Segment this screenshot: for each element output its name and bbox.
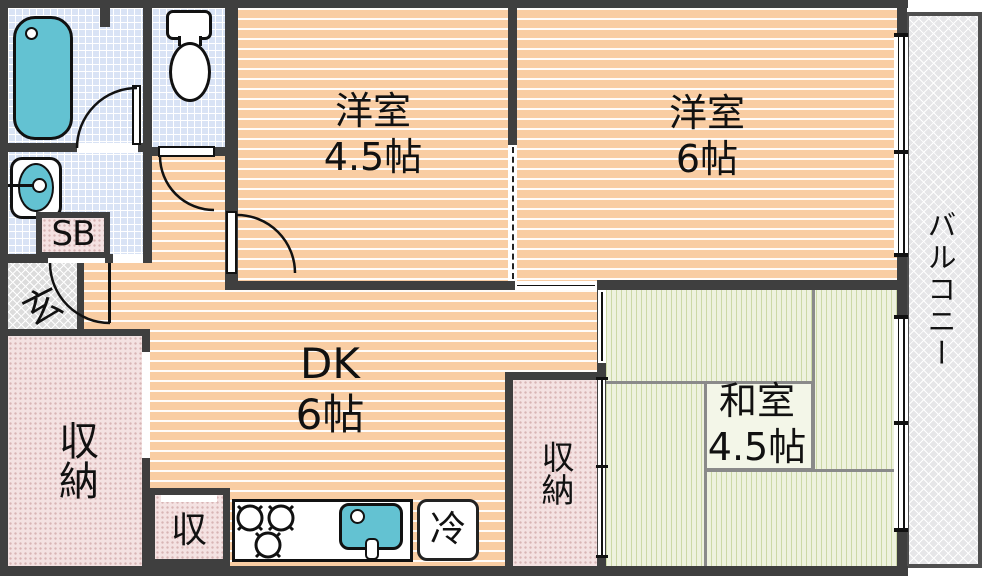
room-size: 6帖 [296,389,365,440]
storage-small-door [161,495,217,502]
balcony-label: バルコニー [908,185,972,395]
fusuma-tick [596,377,608,380]
storage-small-box: 収 [148,488,230,566]
sink-drain-tab [365,538,379,560]
stove-burners [236,502,346,560]
bathtub [13,16,73,140]
sliding-door-line [517,285,595,287]
window-line [898,33,900,257]
bathtub-drain [25,27,38,40]
shoe-box-label: SB [52,214,95,255]
entrance-door-leaf [108,263,111,323]
toilet-bowl [169,42,211,102]
window-tick [894,528,908,532]
wall-closet-left [505,372,513,566]
room-name: DK [300,338,360,389]
room-size: 6帖 [676,136,738,182]
storage-hall-label: 収納 [47,400,103,520]
doorway-dk-japanese [598,290,606,363]
wall-japanese-top [597,280,907,290]
window-tick [894,253,908,257]
bathroom-door-leaf [132,85,141,145]
floor-plan: SB 収 冷 バルコニー 洋室 4.5帖 洋室 6帖 DK 6帖 [0,0,985,576]
room-size: 4.5帖 [324,134,422,180]
fusuma-closet [598,378,605,558]
washroom-doorway [113,254,143,263]
fusuma-tick [596,555,608,558]
window-line [903,33,905,257]
window-japanese-room [894,315,908,532]
bathroom-door-threshold [77,143,138,153]
sliding-door-line [601,378,603,558]
wall-partition-west-rooms [508,8,517,145]
toilet-door-leaf [158,146,215,157]
western-room-small-door-leaf [226,211,237,274]
refrigerator-label: 冷 [430,508,466,552]
dk-label: DK 6帖 [240,338,420,440]
storage-small-label: 収 [171,509,207,553]
room-name: 洋室 [669,90,745,136]
wall-top [0,0,908,8]
sink-faucet [350,509,365,524]
washbasin-faucet-knob [32,178,47,193]
window-tick [894,421,908,425]
storage-closet-label: 収納 [533,428,577,518]
storage-hall-doorway [142,352,150,458]
window-tick [894,315,908,319]
room-name: 洋室 [335,88,411,134]
sliding-door-line [601,292,603,361]
wall-left [0,0,8,576]
wall-stub-top [100,0,110,27]
room-size: 4.5帖 [708,424,806,470]
partition-dashed-line [512,147,514,279]
partition-sliding-section [508,145,517,281]
wall-bottom [0,566,908,576]
storage-small-label-wrap: 収 [155,503,223,559]
wall-entrance-right [77,262,84,329]
room-name: 和室 [719,378,795,424]
refrigerator: 冷 [417,499,479,561]
western-room-small-label: 洋室 4.5帖 [238,88,508,181]
wall-entrance-bottom [8,329,150,336]
wall-closet-top [505,372,597,380]
window-tick [894,33,908,37]
wall-bath-toilet [143,0,152,263]
shoe-box: SB [36,212,110,258]
fusuma-tick [596,465,608,468]
sliding-door-dk-west-large [515,281,597,290]
western-room-large-label: 洋室 6帖 [517,90,897,183]
japanese-room-label: 和室 4.5帖 [657,378,857,471]
